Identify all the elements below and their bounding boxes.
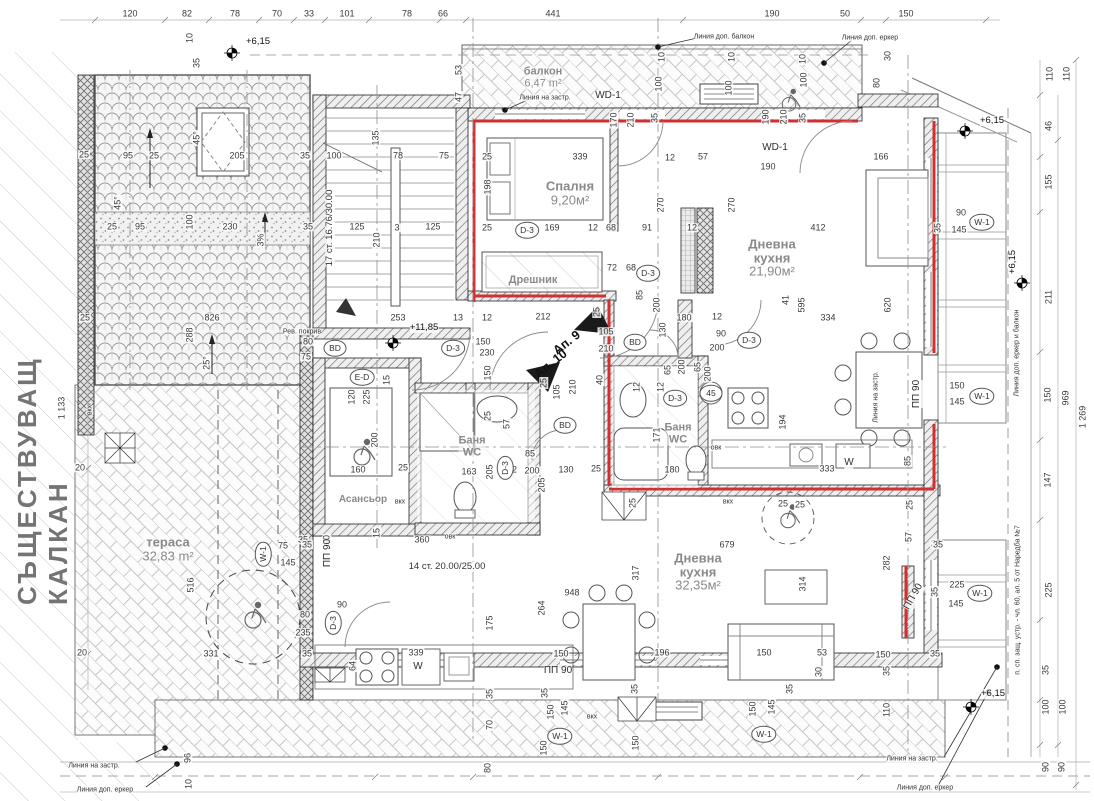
dim-label: 175 bbox=[485, 614, 494, 631]
dim-label: 25 bbox=[905, 499, 914, 511]
tag-label: ПП 90 bbox=[902, 582, 925, 612]
note-label: Рев. покрив bbox=[283, 328, 321, 335]
dim-label: 190 bbox=[763, 9, 780, 18]
dim-label: 10 bbox=[798, 53, 807, 65]
dim-label: 225 bbox=[1044, 581, 1053, 598]
note-label: вкх bbox=[86, 405, 93, 415]
dim-label: 100 bbox=[185, 213, 194, 230]
dim-label: 230 bbox=[478, 348, 495, 357]
floor-plan-canvas: 1208278703310178664411905015010355347101… bbox=[0, 0, 1094, 801]
dim-label: 210 bbox=[568, 378, 577, 395]
dim-label: 75 bbox=[277, 541, 289, 550]
dim-label: 15 bbox=[382, 374, 391, 386]
dim-label: 210 bbox=[597, 344, 614, 353]
dim-label: 30 bbox=[883, 50, 892, 62]
marker-bubble: D-3 bbox=[663, 390, 687, 407]
dim-label: 826 bbox=[203, 313, 220, 322]
dim-label: 150 bbox=[755, 648, 772, 657]
dim-label: 20 bbox=[74, 463, 86, 472]
dim-label: 35 bbox=[932, 540, 944, 549]
dim-label: 70 bbox=[485, 719, 494, 731]
dim-label: 194 bbox=[778, 413, 787, 430]
dim-label: 147 bbox=[1043, 471, 1052, 488]
note-label: Линия на застр. bbox=[68, 762, 119, 769]
dim-label: 150 bbox=[483, 364, 492, 381]
dim-label: 150 bbox=[897, 9, 914, 18]
dim-label: 25 bbox=[481, 152, 493, 161]
dim-label: 25 bbox=[590, 464, 602, 473]
dim-label: 150 bbox=[474, 337, 491, 346]
dim-label: 25 bbox=[481, 223, 493, 232]
marker-bubble: BD bbox=[554, 417, 577, 434]
dim-label: 171 bbox=[652, 426, 661, 443]
dim-label: 10 bbox=[727, 51, 736, 63]
marker-bubble: BD bbox=[624, 334, 647, 351]
note-label: п. сп. защ. устр. - чл. 60, ал. 5 от Нар… bbox=[1014, 525, 1021, 674]
dim-label: 163 bbox=[460, 467, 477, 476]
dim-label: 331 bbox=[202, 649, 219, 658]
marker-bubble: W-1 bbox=[969, 214, 994, 231]
dim-label: 200 bbox=[703, 365, 712, 382]
dim-label: 12 bbox=[664, 153, 676, 162]
dim-label: 166 bbox=[872, 152, 889, 161]
dim-label: 3% bbox=[256, 232, 265, 247]
dim-label: 64 bbox=[348, 660, 357, 672]
level-label: +6,15 bbox=[1008, 250, 1018, 274]
dim-label: 35 bbox=[302, 222, 314, 231]
dim-label: 150 bbox=[546, 703, 555, 720]
room-label: Баня WC bbox=[664, 422, 691, 445]
dim-label: 35 bbox=[540, 687, 549, 699]
dim-label: 225 bbox=[948, 580, 965, 589]
dim-label: 80 bbox=[872, 77, 881, 89]
dim-label: 969 bbox=[1061, 389, 1070, 406]
level-label: +6,15 bbox=[246, 37, 270, 47]
tag-label: WD-1 bbox=[595, 91, 621, 102]
dim-label: 360 bbox=[413, 535, 430, 544]
dim-label: 85 bbox=[524, 449, 536, 458]
dim-label: 190 bbox=[761, 108, 770, 125]
dim-label: 130 bbox=[557, 465, 574, 474]
dim-label: 10 bbox=[184, 778, 193, 790]
marker-bubble: D-3 bbox=[497, 456, 514, 480]
dim-label: 100 bbox=[325, 151, 342, 160]
dim-label: 33 bbox=[303, 9, 315, 18]
dim-label: 70 bbox=[271, 9, 283, 18]
dim-label: 110 bbox=[882, 702, 891, 718]
dim-label: 95 bbox=[122, 151, 134, 160]
dim-label: 15 bbox=[372, 527, 381, 539]
dim-label: 100 bbox=[724, 79, 733, 96]
dim-label: 10 bbox=[185, 32, 194, 44]
apartment-label: Ап. 10 bbox=[532, 347, 570, 380]
dim-label: 200 bbox=[652, 296, 661, 313]
dim-label: 145 bbox=[950, 225, 967, 234]
dim-label: 25 bbox=[79, 313, 91, 322]
dim-label: 210 bbox=[372, 231, 381, 248]
dim-label: 45° bbox=[192, 130, 201, 146]
dim-label: 75 bbox=[438, 151, 450, 160]
level-label: +6,15 bbox=[981, 689, 1005, 699]
dim-label: 948 bbox=[563, 588, 580, 597]
dim-label: 35 bbox=[882, 665, 891, 677]
dim-label: 96 bbox=[183, 752, 192, 764]
dim-label: 12 bbox=[587, 223, 599, 232]
room-label: Дрешник bbox=[509, 275, 558, 287]
dim-label: 35 bbox=[485, 688, 494, 700]
dim-label: 1 269 bbox=[1078, 405, 1087, 430]
marker-bubble: W-1 bbox=[255, 541, 272, 566]
dim-label: 35 bbox=[630, 683, 639, 695]
dim-label: 90 bbox=[1041, 761, 1050, 773]
dim-label: 95 bbox=[134, 222, 146, 231]
dim-label: 25 bbox=[483, 410, 492, 422]
dim-label: 35 bbox=[650, 112, 659, 124]
dim-label: 100 bbox=[799, 71, 808, 88]
dim-label: 35 bbox=[301, 649, 313, 658]
dim-label: 13 bbox=[452, 313, 464, 322]
dim-label: 100 bbox=[654, 75, 663, 92]
dim-label: 264 bbox=[537, 599, 546, 616]
room-label: Асансьор bbox=[339, 495, 387, 506]
dim-label: 80 bbox=[302, 337, 314, 346]
dim-label: 205 bbox=[537, 476, 546, 493]
dim-label: 53 bbox=[454, 64, 463, 76]
marker-bubble: 45 bbox=[700, 385, 723, 402]
marker-bubble: BD bbox=[324, 340, 347, 357]
dim-label: 80 bbox=[483, 762, 492, 774]
dim-label: 91 bbox=[641, 223, 653, 232]
note-label: вкх bbox=[395, 498, 405, 505]
dim-label: 235 bbox=[294, 628, 311, 637]
dim-label: 80 bbox=[299, 610, 311, 619]
dim-label: 200 bbox=[677, 358, 686, 375]
marker-bubble: E-D bbox=[350, 369, 375, 386]
dim-label: 595 bbox=[797, 296, 806, 313]
dim-label: 170 bbox=[609, 111, 618, 128]
dim-label: 25 bbox=[397, 463, 409, 472]
dim-label: 30 bbox=[814, 666, 823, 678]
dim-label: 339 bbox=[407, 648, 424, 657]
text-label: 14 ст. 20.00/25.00 bbox=[409, 562, 486, 572]
marker-bubble: W-1 bbox=[751, 726, 776, 743]
dim-label: 12 bbox=[632, 381, 641, 393]
dim-label: 12 bbox=[656, 381, 665, 393]
dim-label: 78 bbox=[401, 9, 413, 18]
dim-label: 12 bbox=[686, 223, 698, 232]
note-label: Линия на застр. bbox=[872, 371, 879, 422]
dim-label: 282 bbox=[882, 554, 891, 571]
level-label: +6,15 bbox=[980, 116, 1004, 126]
dim-label: 85 bbox=[903, 455, 912, 467]
dim-label: 35 bbox=[192, 57, 201, 69]
dim-label: 441 bbox=[544, 9, 561, 18]
dim-label: 35 bbox=[930, 586, 939, 598]
dim-label: 35 bbox=[299, 151, 311, 160]
dim-label: 78 bbox=[229, 9, 241, 18]
note-label: Линия доп. еркер bbox=[897, 784, 953, 791]
room-label: Дневна кухня21,90м² bbox=[748, 238, 795, 279]
dim-label: 145 bbox=[560, 699, 569, 716]
dim-label: 35 bbox=[929, 649, 941, 658]
room-label: Дневна кухня32,35м² bbox=[674, 552, 721, 593]
dim-label: 90 bbox=[955, 208, 967, 217]
dim-label: 288 bbox=[185, 326, 194, 343]
dim-label: 145 bbox=[767, 698, 776, 715]
dim-label: 57 bbox=[697, 152, 709, 161]
marker-bubble: W-1 bbox=[547, 728, 572, 745]
note-label: вкх bbox=[587, 713, 597, 720]
dim-label: 180 bbox=[675, 313, 692, 322]
dim-label: 150 bbox=[874, 650, 891, 659]
dim-label: 85 bbox=[635, 289, 644, 301]
marker-bubble: D-3 bbox=[515, 222, 539, 239]
dim-label: 210 bbox=[779, 108, 788, 125]
dim-label: 90 bbox=[1057, 761, 1066, 773]
note-label: Линия на застр. bbox=[519, 94, 570, 101]
dim-label: 105 bbox=[552, 383, 561, 400]
dim-label: 120 bbox=[121, 9, 138, 18]
dim-label: 46 bbox=[1044, 120, 1053, 132]
dim-label: 145 bbox=[948, 397, 965, 406]
dim-label: 412 bbox=[809, 223, 826, 232]
dim-label: 150 bbox=[539, 739, 548, 756]
tag-label: ПП 90 bbox=[544, 666, 572, 677]
dim-label: 45° bbox=[113, 195, 122, 211]
dim-label: 160 bbox=[349, 465, 366, 474]
dim-label: 110 bbox=[1045, 66, 1054, 82]
room-label: Спалня9,20м² bbox=[546, 179, 594, 206]
dim-label: 145 bbox=[279, 558, 296, 567]
tag-label: ПП 90 bbox=[323, 539, 334, 567]
tag-label: W bbox=[413, 662, 422, 673]
dim-label: 145 bbox=[947, 599, 964, 608]
tag-label: WD-1 bbox=[762, 143, 788, 154]
dim-label: 82 bbox=[181, 9, 193, 18]
dim-label: 155 bbox=[1044, 173, 1053, 190]
dim-label: 90 bbox=[336, 600, 348, 609]
text-label: 17 ст. 16.76/30.00 bbox=[325, 190, 335, 267]
dim-label: 334 bbox=[819, 313, 836, 322]
dim-label: 12 bbox=[711, 312, 723, 321]
dim-label: 75 bbox=[300, 352, 312, 361]
dim-label: 190 bbox=[759, 162, 776, 171]
dim-label: 90 bbox=[715, 329, 727, 338]
marker-bubble: D-3 bbox=[325, 611, 342, 635]
note-label: овк bbox=[711, 444, 722, 451]
level-label: +11,85 bbox=[410, 323, 439, 333]
note-label: Линия на застр. bbox=[886, 755, 937, 762]
room-label: тераса32,83 m² bbox=[142, 535, 193, 562]
dim-label: 150 bbox=[948, 381, 965, 390]
dim-label: 150 bbox=[1043, 386, 1052, 403]
dim-label: 25 bbox=[148, 151, 160, 160]
dim-label: 110 bbox=[1062, 66, 1071, 82]
note-label: Линия доп. еркер и балкон bbox=[1013, 310, 1020, 397]
dim-label: 25 bbox=[106, 222, 118, 231]
dim-label: 200 bbox=[370, 431, 379, 448]
dim-label: 270 bbox=[656, 196, 665, 213]
note-label: овк bbox=[445, 533, 456, 540]
dim-label: 78 bbox=[392, 151, 404, 160]
dim-label: 150 bbox=[631, 734, 640, 751]
dim-label: 20 bbox=[76, 648, 88, 657]
marker-bubble: W-1 bbox=[969, 388, 994, 405]
dim-label: 211 bbox=[1044, 289, 1053, 305]
dim-label: 53 bbox=[816, 648, 828, 657]
dim-label: 333 bbox=[818, 464, 835, 473]
dim-label: 317 bbox=[631, 564, 640, 581]
dim-label: 125 bbox=[348, 222, 365, 231]
dim-label: 25 bbox=[592, 306, 601, 318]
note-label: Линия доп. балкон bbox=[694, 33, 754, 40]
tag-label: W bbox=[844, 458, 853, 469]
dim-label: 150 bbox=[552, 649, 569, 658]
dim-label: 25° bbox=[202, 355, 211, 371]
marker-bubble: D-3 bbox=[737, 332, 761, 349]
dim-label: 225 bbox=[362, 388, 371, 405]
note-label: Линия доп. еркер bbox=[842, 34, 898, 41]
dim-label: 620 bbox=[883, 296, 892, 313]
marker-bubble: W-1 bbox=[967, 585, 992, 602]
dim-label: 200 bbox=[523, 466, 540, 475]
dim-label: 130 bbox=[658, 321, 667, 338]
marker-bubble: D-3 bbox=[441, 340, 465, 357]
dim-label: 212 bbox=[534, 312, 551, 321]
party-wall-label: СЪЩЕСТВУВАЩ КАЛКАН bbox=[12, 245, 74, 605]
dim-label: 205 bbox=[228, 151, 245, 160]
dim-label: 105 bbox=[597, 327, 614, 336]
dim-label: 68 bbox=[605, 223, 617, 232]
dim-label: 35 bbox=[1041, 664, 1050, 676]
dim-label: 200 bbox=[708, 343, 725, 352]
dim-label: 41 bbox=[781, 294, 790, 306]
dim-label: 35 bbox=[301, 540, 313, 549]
room-label: балкон6,47 m² bbox=[524, 66, 563, 89]
dim-label: 57 bbox=[904, 531, 913, 543]
dim-label: 253 bbox=[389, 313, 406, 322]
dim-label: 25 bbox=[78, 150, 90, 159]
dim-label: 40 bbox=[595, 374, 604, 386]
dim-label: 65 bbox=[663, 364, 672, 376]
dim-label: 66 bbox=[437, 9, 449, 18]
dim-label: 100 bbox=[1041, 698, 1050, 715]
dim-label: 3 bbox=[393, 223, 400, 232]
note-label: вкх bbox=[723, 498, 733, 505]
dim-label: 25 bbox=[794, 500, 806, 509]
room-label: Баня WC bbox=[458, 435, 485, 458]
dim-label: 196 bbox=[653, 648, 670, 657]
dim-label: 314 bbox=[798, 575, 807, 592]
dim-label: 198 bbox=[483, 178, 492, 195]
dim-label: 10 bbox=[657, 51, 666, 63]
dim-label: 516 bbox=[186, 576, 195, 593]
dim-label: 12 bbox=[481, 313, 493, 322]
dim-label: 35 bbox=[933, 222, 942, 234]
dim-label: 135 bbox=[371, 129, 380, 146]
dim-label: 120 bbox=[347, 388, 356, 405]
tag-label: ПП 90 bbox=[912, 380, 923, 408]
dim-label: 50 bbox=[839, 9, 851, 18]
dim-label: 210 bbox=[626, 111, 635, 128]
dim-label: 339 bbox=[571, 152, 588, 161]
dim-label: 679 bbox=[718, 540, 735, 549]
dim-label: 101 bbox=[338, 9, 355, 18]
dim-label: 230 bbox=[221, 222, 238, 231]
dim-label: 35 bbox=[785, 683, 794, 695]
dim-label: 205 bbox=[485, 463, 494, 480]
dim-label: 72 bbox=[606, 263, 618, 272]
dim-label: 180 bbox=[663, 465, 680, 474]
dim-label: 35 bbox=[798, 112, 807, 124]
dim-label: 100 bbox=[1058, 698, 1067, 715]
dim-label: 125 bbox=[424, 222, 441, 231]
annotation-layer: 1208278703310178664411905015010355347101… bbox=[0, 0, 1094, 801]
dim-label: 150 bbox=[748, 700, 757, 717]
marker-bubble: D-3 bbox=[636, 265, 660, 282]
dim-label: 47 bbox=[454, 91, 463, 103]
dim-label: 25 bbox=[777, 499, 789, 508]
dim-label: 57 bbox=[502, 418, 511, 430]
dim-label: 25 bbox=[628, 497, 637, 509]
note-label: Линия доп. еркер bbox=[77, 786, 133, 793]
dim-label: 169 bbox=[543, 223, 560, 232]
dim-label: 270 bbox=[727, 196, 736, 213]
